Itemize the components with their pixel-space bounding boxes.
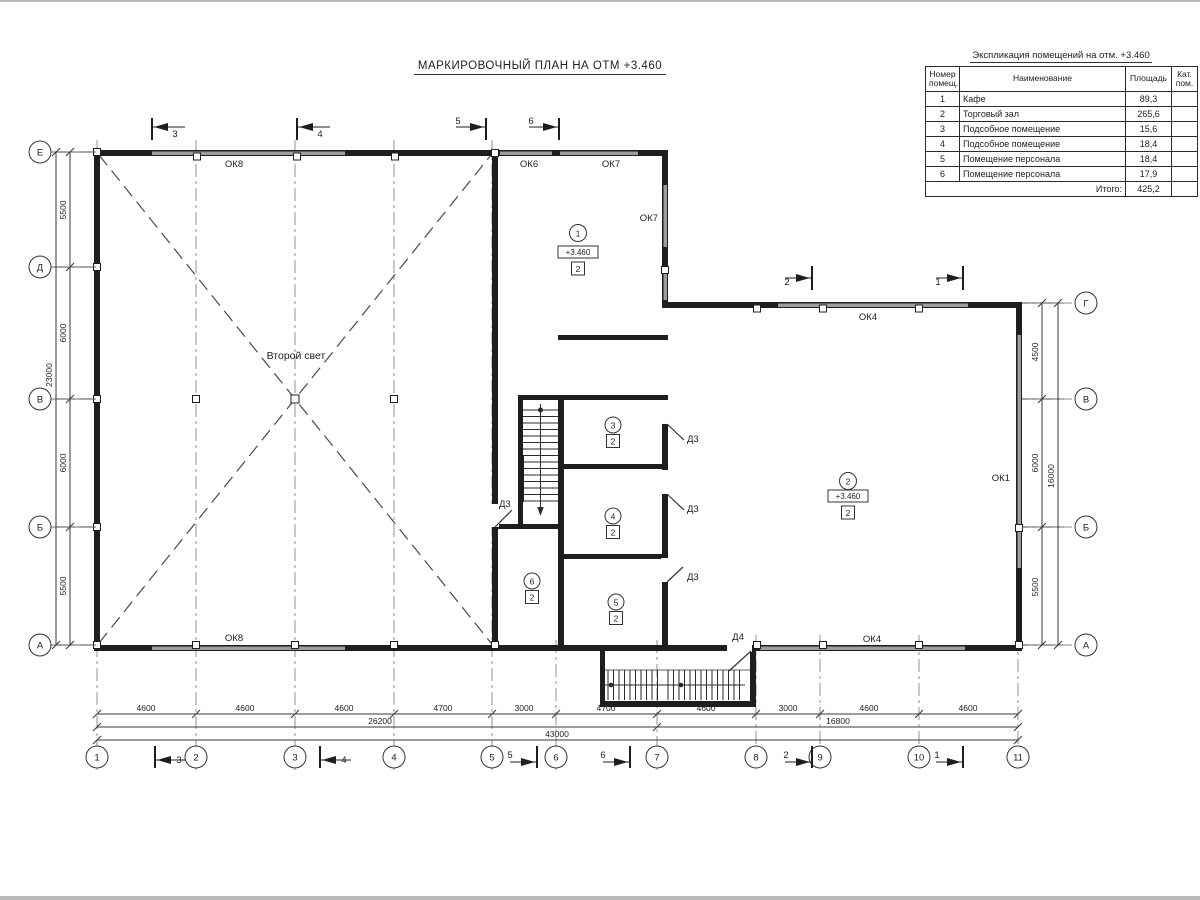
svg-text:2: 2 — [846, 508, 851, 518]
svg-text:4: 4 — [391, 753, 396, 764]
svg-text:5500: 5500 — [58, 576, 68, 595]
second-light-label: Второй свет — [267, 350, 326, 362]
svg-text:5: 5 — [455, 116, 460, 127]
section-marker-5-bottom: 5 — [507, 746, 537, 768]
svg-text:Б: Б — [1083, 523, 1089, 534]
svg-text:Г: Г — [1083, 299, 1088, 310]
svg-text:4: 4 — [611, 512, 616, 522]
svg-text:4600: 4600 — [959, 703, 978, 713]
svg-text:2: 2 — [783, 750, 788, 761]
svg-text:А: А — [1083, 641, 1090, 652]
room-tag-5: 5 2 — [608, 594, 624, 625]
svg-text:3000: 3000 — [515, 703, 534, 713]
svg-text:9: 9 — [817, 753, 822, 764]
drawing-sheet: МАРКИРОВОЧНЫЙ ПЛАН НА ОТМ +3.460 Эксплик… — [0, 0, 1200, 900]
svg-text:2: 2 — [611, 528, 616, 538]
svg-text:6: 6 — [600, 750, 605, 761]
window-label-ok7-side: ОК7 — [640, 213, 658, 224]
svg-text:5: 5 — [614, 598, 619, 608]
window-label-ok4-top: ОК4 — [859, 312, 877, 323]
svg-text:7: 7 — [654, 753, 659, 764]
svg-text:6000: 6000 — [58, 453, 68, 472]
section-marker-5-top: 5 — [455, 116, 486, 140]
axis-labels-left: ЕД ВБ А — [37, 148, 44, 652]
window-label-ok4-bottom: ОК4 — [863, 634, 881, 645]
plan-labels: ОК8 ОК6 ОК7 ОК7 ОК4 ОК4 ОК8 ОК1 Д4 Д3 Д3… — [225, 159, 1010, 645]
axis-labels-bottom: 12 34 56 78 910 11 — [94, 753, 1023, 764]
svg-text:1: 1 — [935, 277, 940, 288]
svg-text:В: В — [37, 395, 43, 406]
svg-text:Д: Д — [37, 263, 44, 274]
svg-text:1: 1 — [94, 753, 99, 764]
svg-text:В: В — [1083, 395, 1089, 406]
window-label-ok6: ОК6 — [520, 159, 538, 170]
svg-text:5: 5 — [507, 750, 512, 761]
window-label-ok1: ОК1 — [992, 473, 1010, 484]
svg-text:10: 10 — [914, 753, 925, 764]
svg-text:2: 2 — [784, 277, 789, 288]
svg-text:4700: 4700 — [597, 703, 616, 713]
svg-text:Е: Е — [37, 148, 43, 159]
svg-text:1: 1 — [576, 229, 581, 239]
svg-text:1: 1 — [934, 750, 939, 761]
svg-text:4600: 4600 — [335, 703, 354, 713]
walls — [94, 150, 1022, 707]
section-marker-1-right: 1 — [935, 266, 963, 290]
svg-text:2: 2 — [614, 614, 619, 624]
svg-text:+3.460: +3.460 — [566, 248, 591, 257]
room-tag-2: 2 +3.460 2 — [828, 473, 868, 520]
svg-text:3: 3 — [176, 755, 181, 766]
svg-text:4600: 4600 — [236, 703, 255, 713]
svg-text:5500: 5500 — [1030, 577, 1040, 596]
room-tags: 1 +3.460 2 2 +3.460 2 3 2 — [524, 225, 868, 625]
svg-text:11: 11 — [1013, 753, 1023, 764]
section-marker-3-bottom: 3 — [155, 746, 186, 768]
external-stair — [605, 670, 750, 700]
svg-text:6000: 6000 — [58, 323, 68, 342]
window-label-ok7-top: ОК7 — [602, 159, 620, 170]
window-label-ok8-bottom: ОК8 — [225, 633, 243, 644]
svg-text:6: 6 — [528, 116, 533, 127]
svg-text:3: 3 — [611, 421, 616, 431]
svg-text:4: 4 — [317, 129, 322, 140]
door-label-d3-room6: Д3 — [499, 499, 511, 510]
svg-text:4600: 4600 — [697, 703, 716, 713]
section-marker-4-top: 4 — [297, 118, 330, 140]
dimension-lines-right — [1022, 299, 1064, 649]
svg-text:4: 4 — [341, 755, 346, 766]
axis-labels-right: ГВ БА — [1083, 299, 1090, 652]
window-label-ok8-top: ОК8 — [225, 159, 243, 170]
svg-text:Б: Б — [37, 523, 43, 534]
room-tag-3: 3 2 — [605, 417, 621, 448]
svg-text:+3.460: +3.460 — [836, 492, 861, 501]
section-marker-1-bottom: 1 — [934, 746, 963, 768]
room-tag-1: 1 +3.460 2 — [558, 225, 598, 276]
svg-text:2: 2 — [530, 593, 535, 603]
svg-text:3: 3 — [292, 753, 297, 764]
section-marker-2-right: 2 — [784, 266, 812, 290]
svg-text:16000: 16000 — [1046, 464, 1056, 488]
svg-text:2: 2 — [846, 477, 851, 487]
svg-text:4600: 4600 — [137, 703, 156, 713]
dimension-labels-bottom: 4600 4600 4600 4700 3000 4700 4600 3000 … — [137, 703, 978, 739]
room-tag-4: 4 2 — [605, 508, 621, 539]
svg-text:16800: 16800 — [826, 716, 850, 726]
door-label-d3-room5: Д3 — [687, 572, 699, 583]
axis-bubbles-right — [1075, 292, 1097, 656]
section-marker-4-bottom: 4 — [320, 746, 351, 768]
svg-text:6000: 6000 — [1030, 453, 1040, 472]
svg-text:5500: 5500 — [58, 200, 68, 219]
svg-text:5: 5 — [489, 753, 494, 764]
svg-text:2: 2 — [611, 437, 616, 447]
section-marker-6-top: 6 — [528, 116, 559, 140]
svg-text:23000: 23000 — [44, 363, 54, 387]
windows — [152, 152, 1021, 651]
dimension-labels-right: 4500 6000 5500 16000 — [1030, 342, 1056, 596]
room-tag-6: 6 2 — [524, 573, 540, 604]
door-label-d3-room3: Д3 — [687, 434, 699, 445]
svg-text:6: 6 — [553, 753, 558, 764]
svg-text:43000: 43000 — [545, 729, 569, 739]
section-marker-2-bottom: 2 — [783, 746, 812, 768]
floor-plan-drawing: 4600 4600 4600 4700 3000 4700 4600 3000 … — [0, 0, 1200, 900]
svg-text:26200: 26200 — [368, 716, 392, 726]
svg-text:8: 8 — [753, 753, 758, 764]
door-label-d4: Д4 — [732, 632, 744, 643]
svg-text:4500: 4500 — [1030, 342, 1040, 361]
section-marker-6-bottom: 6 — [600, 746, 630, 768]
svg-text:3000: 3000 — [779, 703, 798, 713]
internal-stair — [518, 404, 558, 516]
door-label-d3-room4: Д3 — [687, 504, 699, 515]
svg-text:6: 6 — [530, 577, 535, 587]
svg-text:А: А — [37, 641, 44, 652]
section-marker-3-top: 3 — [152, 118, 185, 140]
svg-text:4700: 4700 — [434, 703, 453, 713]
svg-text:2: 2 — [193, 753, 198, 764]
svg-text:2: 2 — [576, 264, 581, 274]
door-leaves — [495, 424, 751, 671]
svg-text:4600: 4600 — [860, 703, 879, 713]
svg-text:3: 3 — [172, 129, 177, 140]
